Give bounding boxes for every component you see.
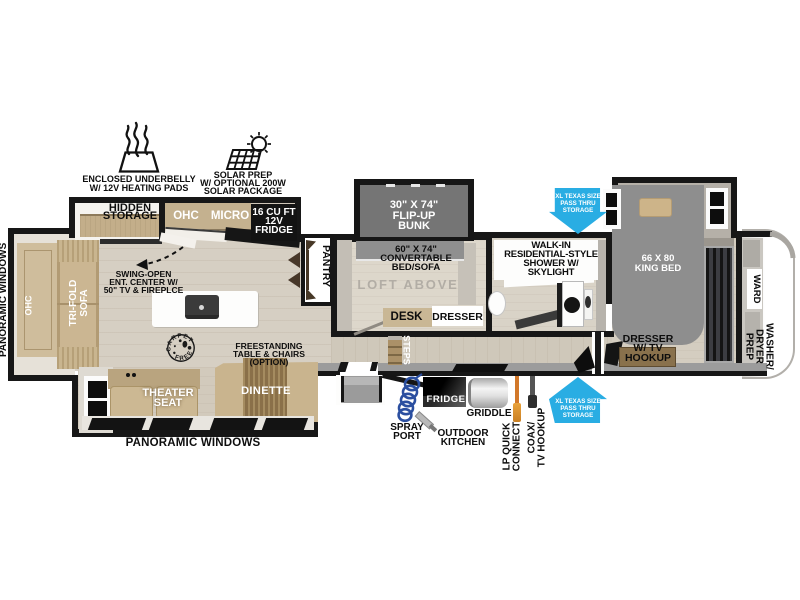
svg-text:FREE: FREE: [172, 347, 197, 365]
